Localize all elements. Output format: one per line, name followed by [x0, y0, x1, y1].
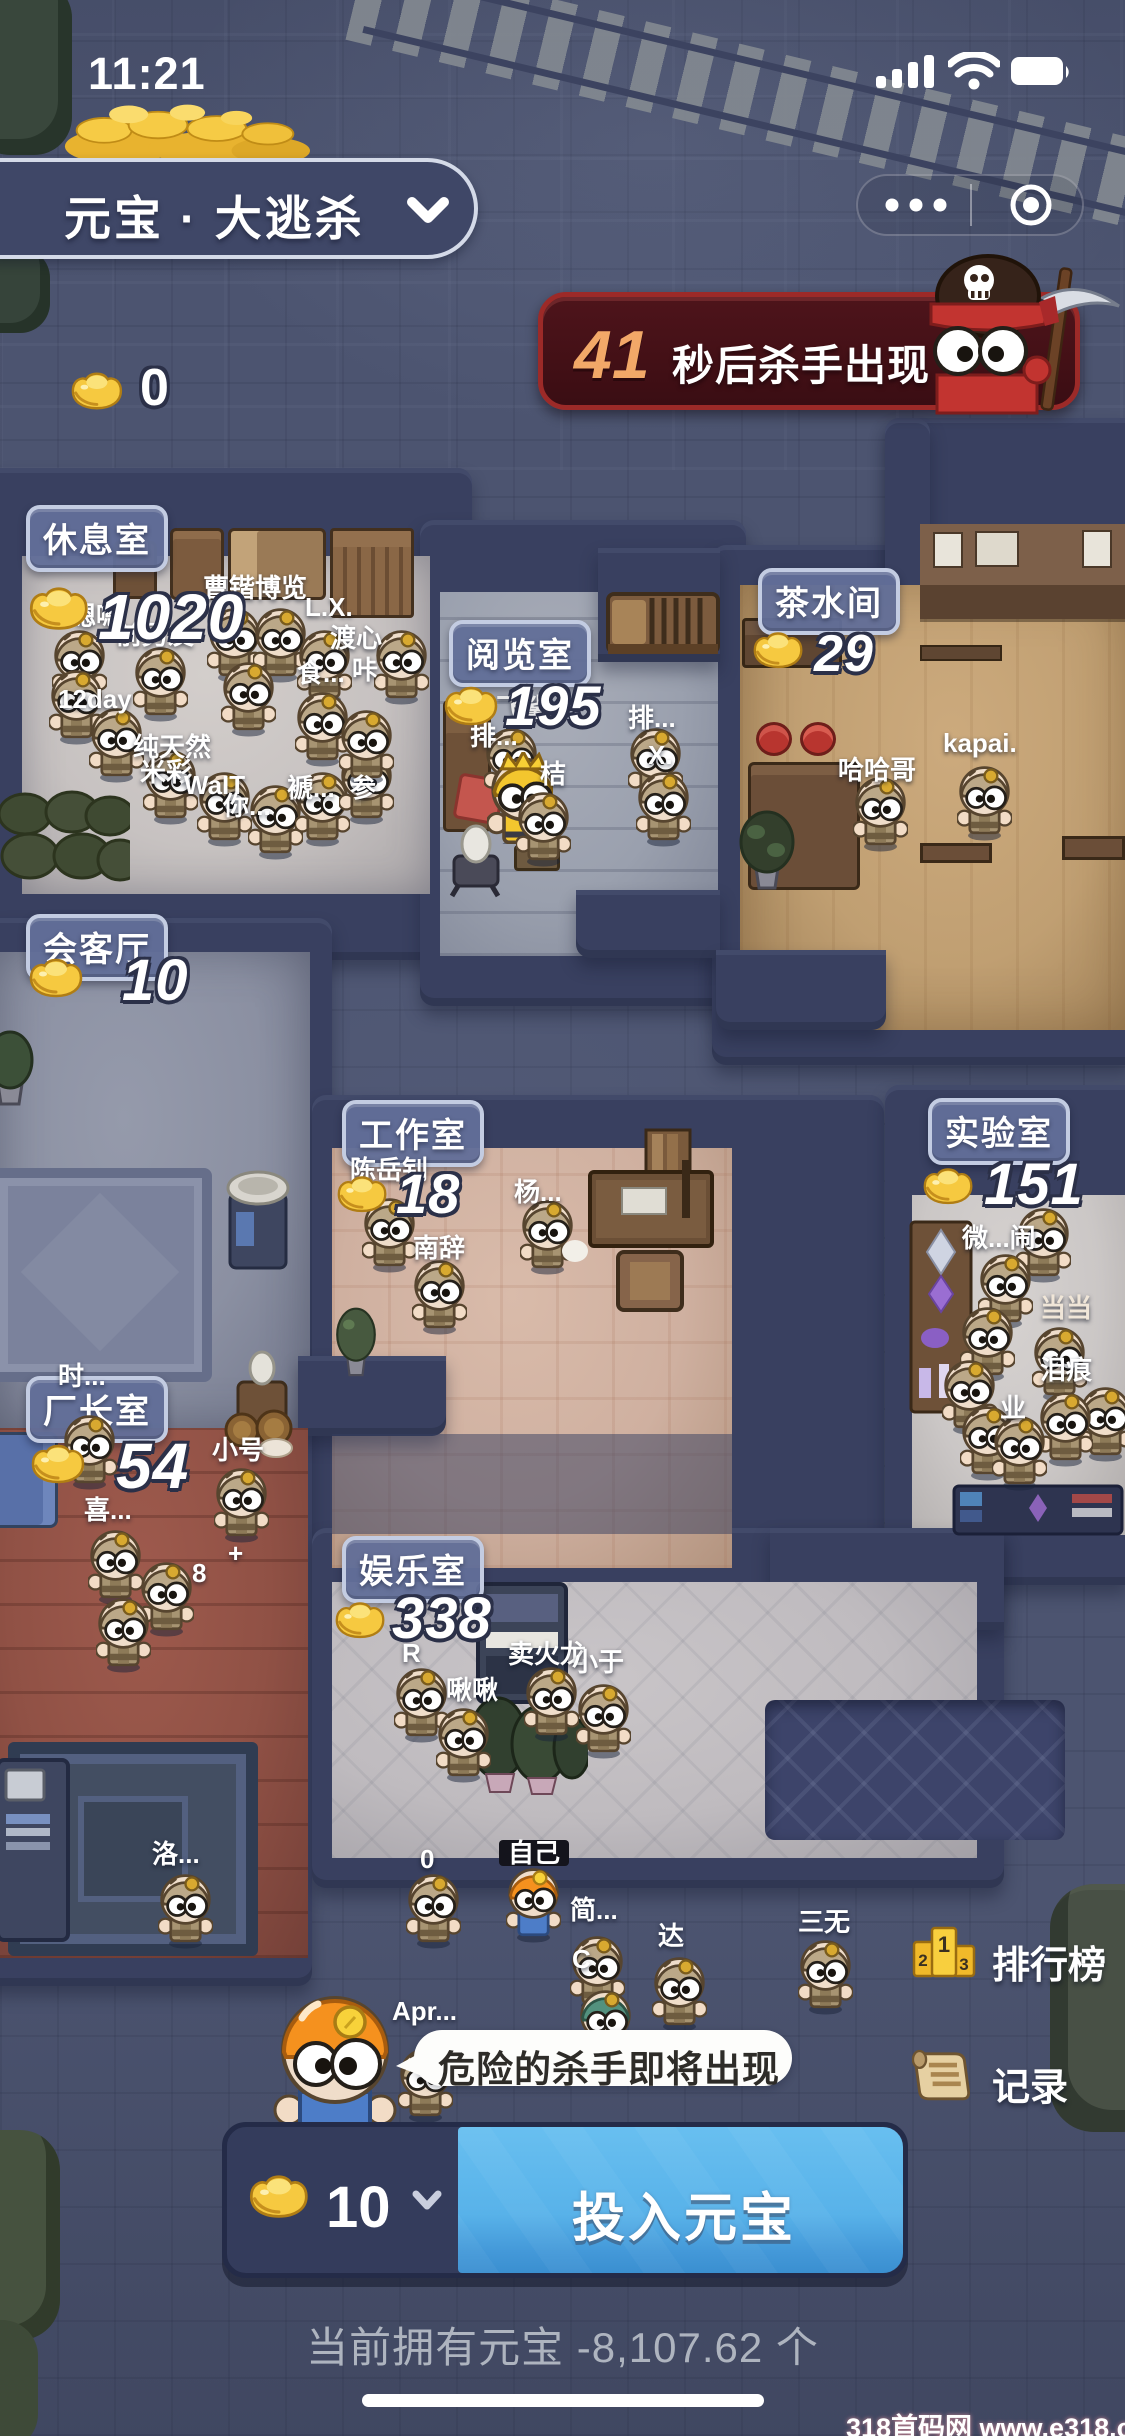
svg-text:3: 3	[959, 1955, 968, 1974]
svg-text:2: 2	[918, 1951, 927, 1970]
svg-text:1: 1	[938, 1932, 950, 1957]
